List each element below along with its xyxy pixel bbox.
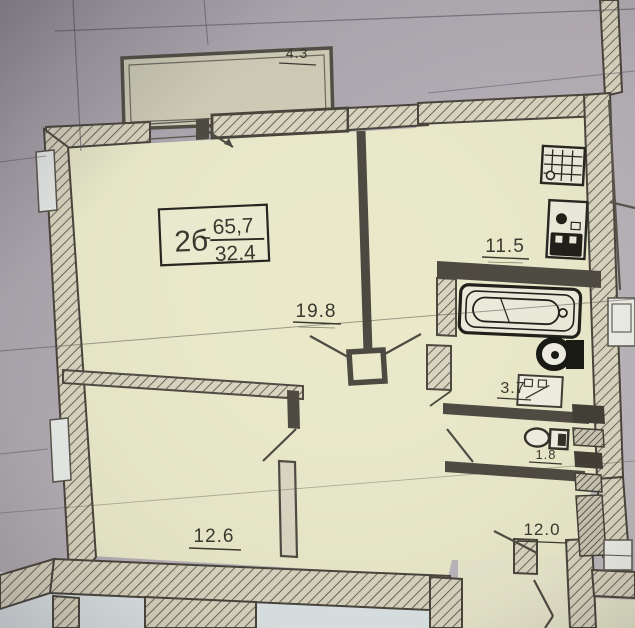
photo-overlays	[0, 0, 635, 628]
floorplan-svg: 2б 65,7 32.4 4.3 19.8 11.5 3.7 1.8	[0, 0, 635, 628]
scanned-floorplan-photo: 2б 65,7 32.4 4.3 19.8 11.5 3.7 1.8	[0, 0, 635, 628]
